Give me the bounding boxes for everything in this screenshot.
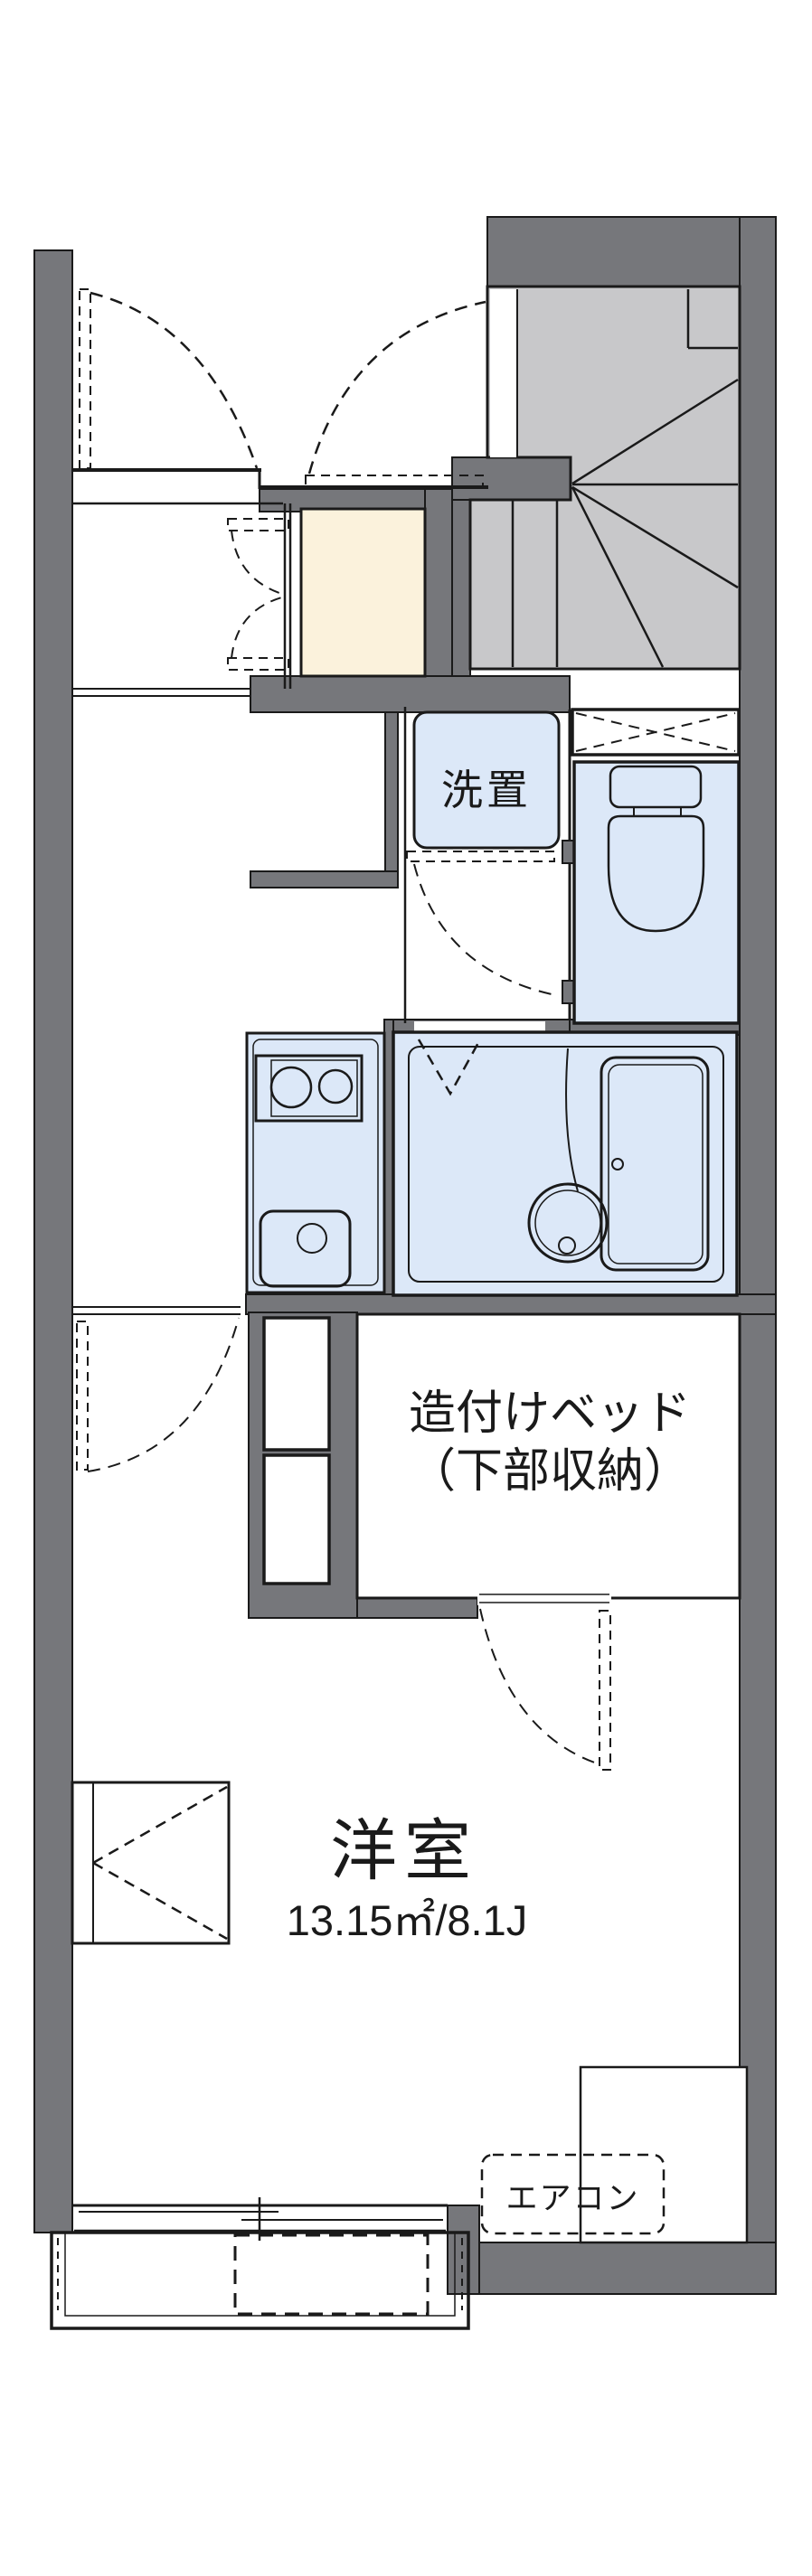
door-swing-arc — [88, 1318, 239, 1471]
door-swing-arc — [231, 531, 285, 595]
door-swing-arc — [90, 293, 257, 468]
kitchen-counter — [247, 1033, 384, 1293]
bed-label-line2: （下部収納） — [409, 1445, 691, 1498]
door-leaf — [228, 658, 288, 670]
main-room-label: 洋室 — [255, 1797, 553, 1894]
door-leaf — [228, 519, 288, 531]
storage-box — [264, 1455, 329, 1584]
door-swing-arc — [231, 597, 285, 658]
built-in-bed-label: 造付けベッド （下部収納） — [360, 1385, 740, 1500]
balcony — [52, 2233, 468, 2328]
bathroom-unit — [393, 1032, 737, 1295]
door-leaf — [600, 1611, 610, 1770]
door-leaf — [77, 1321, 88, 1470]
stair-landing-strip — [490, 289, 517, 457]
washroom — [405, 707, 577, 1031]
door-swing-arc — [414, 864, 552, 994]
bed-label-line1: 造付けベッド — [409, 1387, 691, 1440]
main-room-size-label: 13.15㎡/8.1J — [203, 1885, 610, 1948]
entry-doors — [72, 289, 488, 489]
door-leaf — [80, 289, 90, 468]
door-swing-arc — [480, 1609, 600, 1764]
toilet-tank — [610, 766, 701, 807]
bath-doorway-gap — [414, 1021, 545, 1031]
aircon-label: エアコン — [482, 2173, 664, 2219]
toilet-bowl — [609, 816, 703, 931]
balcony-hatch — [235, 2235, 428, 2314]
door-leaf — [407, 851, 554, 861]
toilet-room — [572, 710, 739, 1023]
entrance-genkan — [301, 509, 425, 676]
door-swing-arc — [309, 302, 486, 474]
floor-plan-drawing — [0, 0, 812, 2576]
storage-room — [72, 503, 290, 696]
laundry-label: 洗置 — [414, 757, 559, 817]
floor-plan: 洗置 造付けベッド （下部収納） 洋室 13.15㎡/8.1J エアコン — [0, 0, 812, 2576]
storage-box — [264, 1318, 329, 1450]
